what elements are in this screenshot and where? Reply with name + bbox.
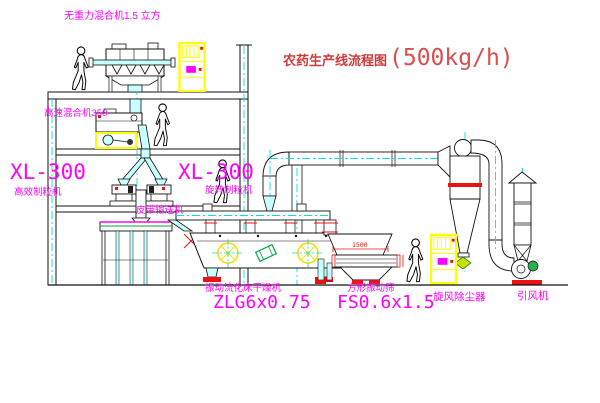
label-granulator-right-name: 旋转制粒机 <box>205 186 253 196</box>
control-cabinet-roof <box>180 43 205 91</box>
label-screen-model: FS0.6x1.5 <box>337 294 435 312</box>
label-belt-conveyor: 皮带输送机 <box>136 206 184 216</box>
label-dryer-model: ZLG6x0.75 <box>213 294 311 312</box>
label-granulator-left-name: 高效制粒机 <box>14 188 62 198</box>
label-granulator-left-model: XL-300 <box>10 162 86 183</box>
flow-diagram-page: 1500 <box>0 0 600 403</box>
label-gravity-mixer: 无重力混合机1.5 立方 <box>64 12 161 22</box>
granulator-feed-chute <box>121 158 164 181</box>
label-high-speed-mixer: 高速混合机350 <box>44 109 107 119</box>
label-fan: 引风机 <box>517 291 549 302</box>
title-chinese: 农药生产线流程图 <box>283 50 387 69</box>
person-ground <box>407 239 423 282</box>
control-cabinet-ground <box>431 235 456 283</box>
granulator-left <box>110 179 138 206</box>
person-roof <box>72 47 88 90</box>
induced-draft-fan <box>512 260 543 286</box>
gravity-free-mixer <box>89 43 175 92</box>
label-granulator-right-model: XL-300 <box>178 162 254 183</box>
belt-conveyor <box>100 220 198 285</box>
granulator-right <box>145 179 173 206</box>
person-second-floor <box>154 104 169 146</box>
screen-dimension: 1500 <box>352 241 368 249</box>
label-cyclone: 旋风除尘器 <box>433 292 486 303</box>
drawing-title: 农药生产线流程图 (500kg/h) <box>283 48 514 69</box>
title-capacity: (500kg/h) <box>389 48 514 69</box>
